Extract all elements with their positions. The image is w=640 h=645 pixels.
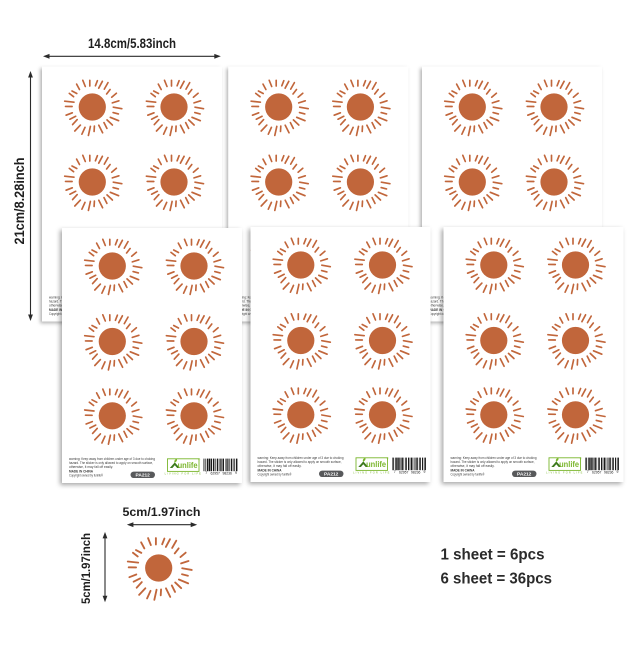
svg-text:5cm/1.97inch: 5cm/1.97inch — [79, 533, 93, 604]
svg-text:21cm/8.28inch: 21cm/8.28inch — [12, 158, 27, 245]
svg-text:1 sheet = 6pcs: 1 sheet = 6pcs — [441, 546, 545, 563]
svg-text:14.8cm/5.83inch: 14.8cm/5.83inch — [88, 36, 176, 51]
svg-text:6 sheet = 36pcs: 6 sheet = 36pcs — [441, 570, 553, 587]
svg-text:5cm/1.97inch: 5cm/1.97inch — [123, 505, 201, 519]
